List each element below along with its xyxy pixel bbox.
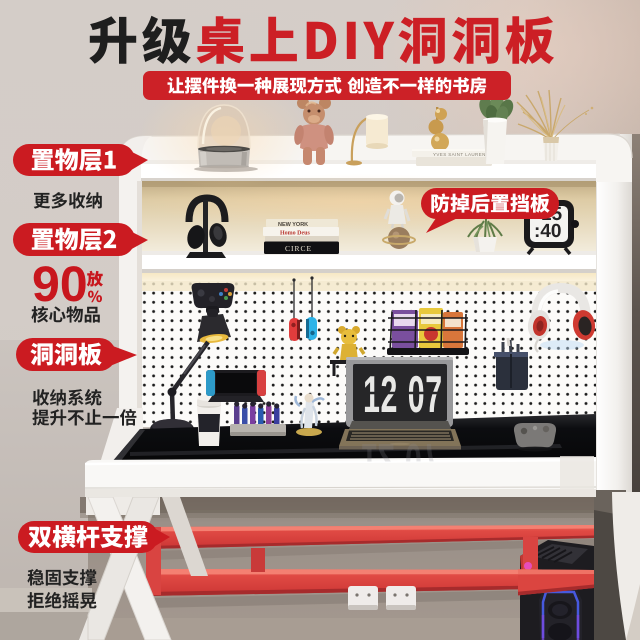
svg-text:Homo Deus: Homo Deus — [280, 231, 310, 237]
svg-text:CIRCE: CIRCE — [285, 244, 312, 253]
svg-text:YVES SAINT LAURENT: YVES SAINT LAURENT — [433, 152, 489, 157]
